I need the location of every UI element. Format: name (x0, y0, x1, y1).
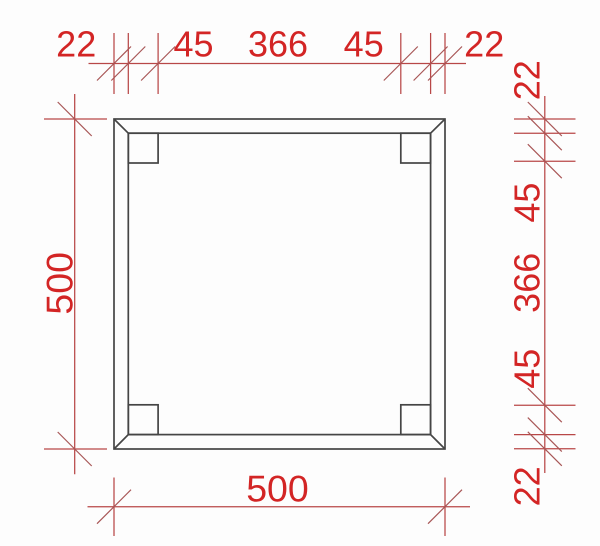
svg-text:22: 22 (464, 23, 504, 64)
svg-text:500: 500 (39, 252, 81, 315)
svg-text:366: 366 (507, 253, 548, 313)
svg-text:22: 22 (56, 23, 96, 64)
svg-text:45: 45 (173, 23, 213, 64)
svg-text:22: 22 (507, 60, 548, 100)
svg-text:45: 45 (344, 23, 384, 64)
svg-text:500: 500 (246, 468, 309, 510)
svg-text:45: 45 (507, 349, 548, 389)
svg-text:45: 45 (507, 183, 548, 223)
svg-text:366: 366 (248, 23, 308, 64)
svg-text:22: 22 (507, 466, 548, 506)
